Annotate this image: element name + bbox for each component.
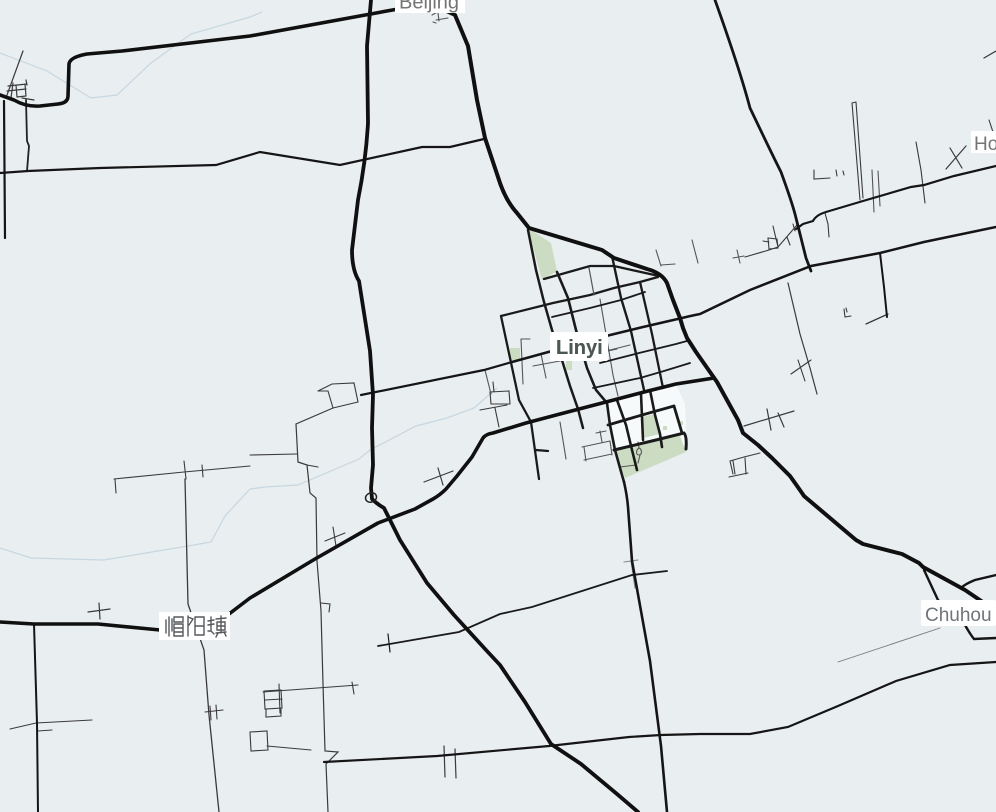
- svg-text:Hou: Hou: [974, 134, 996, 155]
- svg-text:Beijing: Beijing: [399, 0, 459, 14]
- svg-text:Chuhou: Chuhou: [925, 605, 992, 626]
- svg-text:Linyi: Linyi: [556, 337, 603, 359]
